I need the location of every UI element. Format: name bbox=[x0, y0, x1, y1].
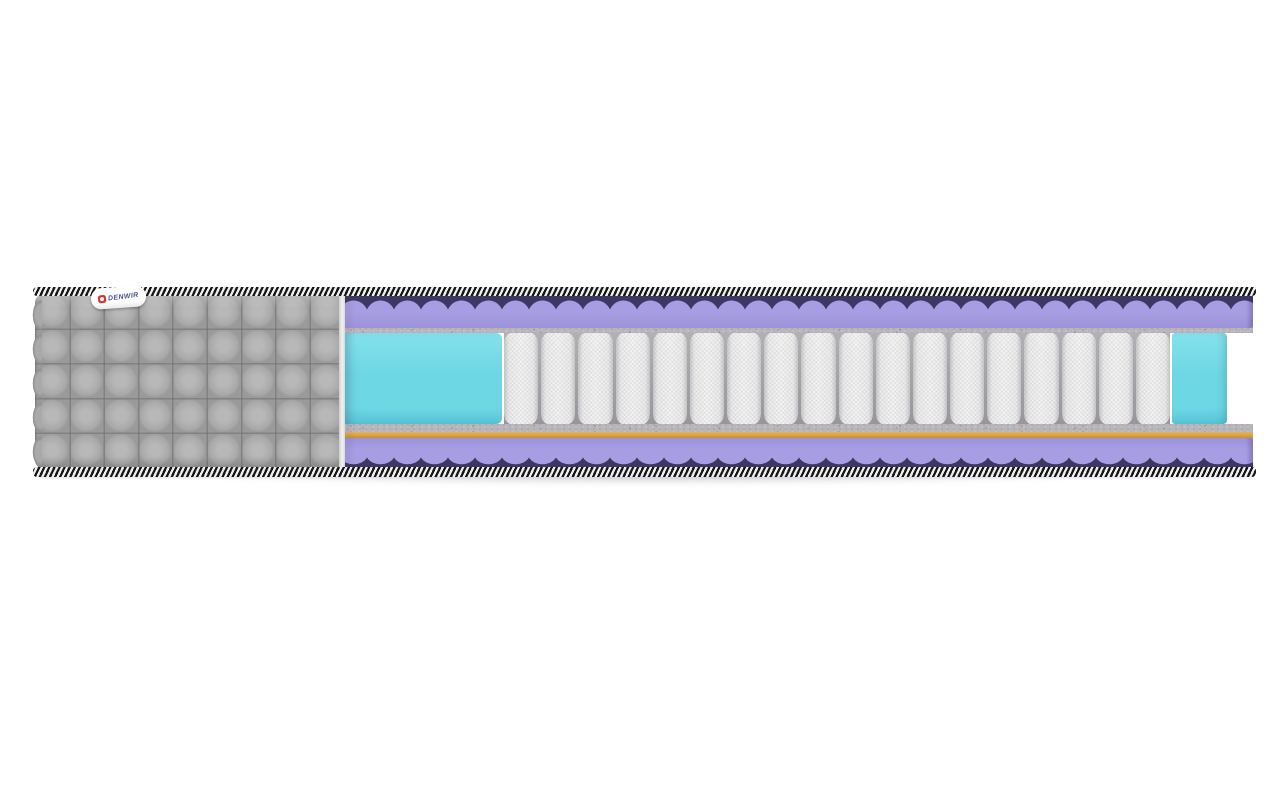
mattress-cutaway: DENWIR bbox=[33, 287, 1256, 477]
quilted-cover bbox=[35, 294, 341, 469]
top-wave-foam-layer bbox=[340, 296, 1253, 328]
spring-coil bbox=[616, 333, 650, 424]
brand-tag: DENWIR bbox=[90, 285, 146, 310]
pocket-springs bbox=[504, 333, 1170, 424]
spring-coil bbox=[876, 333, 910, 424]
brand-tag-label: DENWIR bbox=[108, 292, 139, 303]
felt-pad-bottom bbox=[340, 424, 1253, 432]
floor-shadow bbox=[45, 476, 1245, 488]
spring-coil bbox=[950, 333, 984, 424]
foam-edge-block-left bbox=[340, 333, 502, 424]
foam-wave-profile-top bbox=[340, 296, 1253, 313]
mattress-core bbox=[340, 333, 1227, 424]
spring-coil bbox=[1136, 333, 1170, 424]
spring-coil bbox=[1099, 333, 1133, 424]
spring-coil bbox=[541, 333, 575, 424]
brand-logo-icon bbox=[98, 294, 107, 303]
product-image: DENWIR bbox=[0, 0, 1280, 800]
spring-coil bbox=[653, 333, 687, 424]
spring-coil bbox=[1024, 333, 1058, 424]
edge-tape-bottom bbox=[33, 467, 1256, 477]
cover-side-bumps bbox=[28, 298, 42, 465]
edge-tape-top bbox=[33, 287, 1256, 296]
spring-coil bbox=[913, 333, 947, 424]
foam-edge-block-right bbox=[1172, 333, 1227, 424]
spring-coil bbox=[987, 333, 1021, 424]
spring-coil bbox=[727, 333, 761, 424]
foam-wave-profile-bottom bbox=[340, 455, 1253, 467]
spring-coil bbox=[839, 333, 873, 424]
cross-section bbox=[340, 287, 1253, 477]
spring-coil bbox=[764, 333, 798, 424]
spring-coil bbox=[690, 333, 724, 424]
spring-coil bbox=[578, 333, 612, 424]
spring-coil bbox=[801, 333, 835, 424]
cover-cut-edge bbox=[339, 294, 345, 469]
spring-coil bbox=[504, 333, 538, 424]
bottom-wave-foam-layer bbox=[340, 438, 1253, 467]
spring-coil bbox=[1062, 333, 1096, 424]
